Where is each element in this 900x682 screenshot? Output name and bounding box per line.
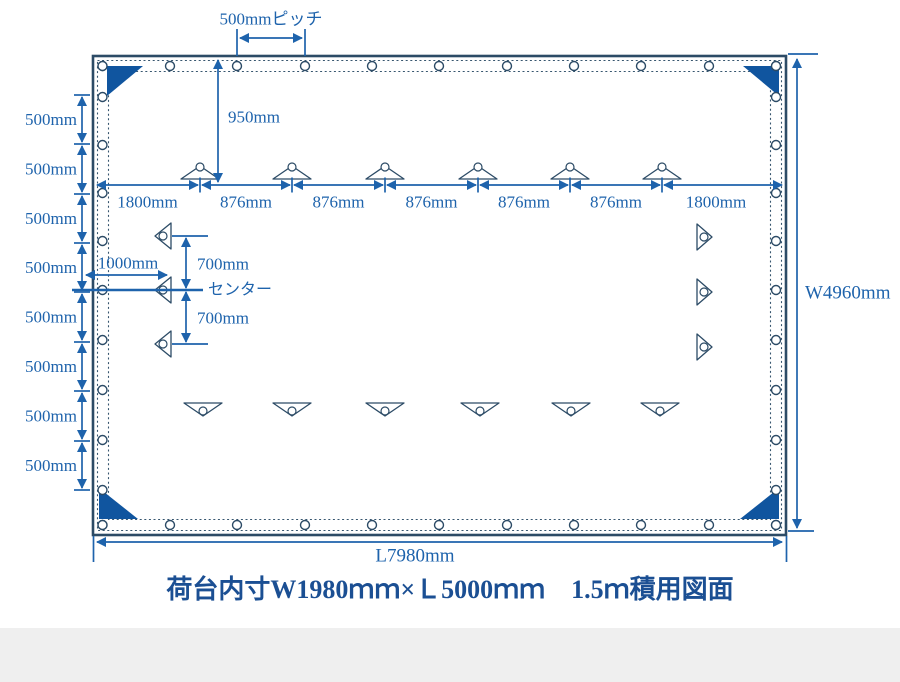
grommet (98, 436, 107, 445)
left-dimension-chain-layer: 500mm500mm500mm500mm500mm500mm500mm500mm (25, 95, 90, 490)
loop-ring (700, 343, 708, 351)
grommet (772, 141, 781, 150)
grommet (98, 237, 107, 246)
loop-ring (159, 340, 167, 348)
drop-950-label: 950mm (228, 108, 280, 127)
grommet (637, 62, 646, 71)
grommet (368, 521, 377, 530)
loop-ring (476, 407, 484, 415)
loop-ring (658, 163, 666, 171)
grommet (503, 521, 512, 530)
dimension-label: 1800mm (686, 193, 746, 212)
loop-ring (288, 163, 296, 171)
dimension-label: 876mm (590, 193, 642, 212)
grommet (772, 486, 781, 495)
grommet (166, 62, 175, 71)
dimension-label: 876mm (498, 193, 550, 212)
chain-label: 500mm (25, 160, 77, 179)
loop-ring (381, 407, 389, 415)
grommet (98, 141, 107, 150)
loop-ring (700, 288, 708, 296)
gap-700-label-lower: 700mm (197, 309, 249, 328)
bottom-band (0, 628, 900, 682)
loop-ring (700, 233, 708, 241)
dimension-label: 876mm (220, 193, 272, 212)
length-label: L7980mm (375, 546, 454, 567)
grommet (772, 386, 781, 395)
loop-ring (159, 232, 167, 240)
grommet (705, 62, 714, 71)
width-label: W4960mm (805, 283, 891, 304)
grommet (368, 62, 377, 71)
chain-label: 500mm (25, 258, 77, 277)
loop-ring (567, 407, 575, 415)
chain-label: 500mm (25, 110, 77, 129)
loop-ring (199, 407, 207, 415)
grommet (705, 521, 714, 530)
chain-label: 500mm (25, 209, 77, 228)
grommet (772, 189, 781, 198)
tarpaulin-outline (93, 56, 786, 535)
dimension-label: 1800mm (117, 193, 177, 212)
loop-ring (474, 163, 482, 171)
chain-label: 500mm (25, 308, 77, 327)
grommet (570, 62, 579, 71)
chain-label: 500mm (25, 407, 77, 426)
grommet (98, 93, 107, 102)
grommet (435, 521, 444, 530)
loop-ring (656, 407, 664, 415)
grommet (637, 521, 646, 530)
drawing-caption: 荷台内寸W1980ｍｍ×Ｌ5000ｍｍ 1.5ｍ積用図面 (0, 569, 900, 606)
drawing-page: 1800mm876mm876mm876mm876mm876mm1800mm 50… (0, 0, 900, 682)
grommet (98, 62, 107, 71)
grommet (98, 486, 107, 495)
grommet (301, 62, 310, 71)
pitch-label: 500mmピッチ (220, 10, 323, 29)
grommet (435, 62, 444, 71)
gap-700-label-upper: 700mm (197, 255, 249, 274)
dimension-label: 876mm (313, 193, 365, 212)
grommet (772, 436, 781, 445)
grommet (166, 521, 175, 530)
loop-ring (381, 163, 389, 171)
grommet (772, 62, 781, 71)
grommet (772, 93, 781, 102)
grommet (772, 336, 781, 345)
chain-label: 500mm (25, 357, 77, 376)
grommet (772, 237, 781, 246)
loop-ring (288, 407, 296, 415)
dimension-label: 876mm (406, 193, 458, 212)
center-label: センター (208, 281, 272, 299)
offset-1000-label: 1000mm (98, 254, 158, 273)
grommet (98, 189, 107, 198)
grommet (98, 521, 107, 530)
grommet (503, 62, 512, 71)
grommet (772, 286, 781, 295)
grommet (570, 521, 579, 530)
loop-ring (566, 163, 574, 171)
grommet (98, 386, 107, 395)
grommet (98, 336, 107, 345)
loop-ring (196, 163, 204, 171)
grommet (772, 521, 781, 530)
grommet (233, 62, 242, 71)
grommet (301, 521, 310, 530)
chain-label: 500mm (25, 456, 77, 475)
grommet (233, 521, 242, 530)
